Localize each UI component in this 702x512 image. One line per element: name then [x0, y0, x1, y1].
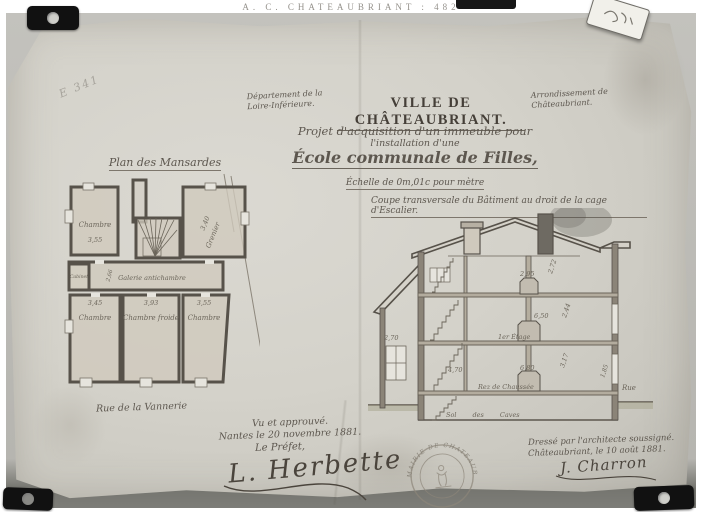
- stamp-inner-ring: [418, 451, 467, 500]
- top-mount-tab: [456, 0, 516, 9]
- dim: 1,85: [599, 364, 610, 379]
- dim: 4,70: [447, 366, 462, 374]
- school-title-text: École communale de Filles,: [292, 148, 537, 169]
- scale-note: Échelle de 0m,01c pour mètre: [250, 170, 580, 189]
- attic-floor-plan: Chambre 3,55 3,40 Grenier Galerie antich…: [55, 172, 260, 400]
- dim: 2,95: [519, 270, 534, 278]
- dim: 2,70: [383, 334, 398, 342]
- terrain-wash: [368, 402, 653, 411]
- photo-corner-mount: [634, 485, 695, 511]
- project-title-line1: Projet d'acquisition d'un immeuble pour: [250, 124, 580, 138]
- stamp-figure: [433, 464, 452, 487]
- mount-hole: [22, 493, 34, 505]
- dim: 6,80: [520, 364, 534, 372]
- signature-flourish: [220, 478, 370, 502]
- dim: 2,72: [546, 258, 558, 275]
- dim: 6,50: [534, 312, 548, 320]
- street-label: Rue: [621, 384, 636, 392]
- floor-label: Rez de Chaussée: [477, 383, 534, 391]
- room-label: Chambre froide: [123, 314, 179, 322]
- scale-note-text: Échelle de 0m,01c pour mètre: [346, 178, 484, 190]
- plan-title: Plan des Mansardes: [90, 151, 240, 170]
- room-dim: 3,55: [88, 236, 102, 244]
- archival-photo-of-drawing: A. C. CHATEAUBRIANT : 482 E 341 Départem…: [0, 0, 702, 512]
- room-dim: 3,45: [88, 299, 102, 307]
- photo-smudge: [550, 208, 612, 237]
- room-dim: 3,55: [197, 299, 211, 307]
- photo-corner-mount: [3, 487, 54, 511]
- photo-corner-mount: [27, 6, 79, 30]
- cross-section-drawing: 2,95 2,72 6,50 2,44 1er Étage 6,80 3,17 …: [368, 208, 653, 433]
- mount-hole: [47, 12, 59, 24]
- plan-title-text: Plan des Mansardes: [109, 156, 221, 171]
- dim: 3,17: [558, 352, 570, 369]
- room-label: Galerie antichambre: [118, 274, 186, 282]
- room-label: Chambre: [79, 314, 112, 322]
- mount-hole: [658, 492, 670, 504]
- room-label: Cabinet: [70, 274, 88, 280]
- floor-label: 1er Étage: [498, 332, 531, 341]
- dim: 2,44: [560, 302, 572, 319]
- school-title: École communale de Filles,: [250, 148, 580, 167]
- architect-flourish: [552, 470, 662, 488]
- room-label: Chambre: [188, 314, 221, 322]
- floor-label: Sol des Caves: [446, 411, 520, 419]
- room-label: Chambre: [79, 221, 112, 229]
- room-dim: 3,93: [144, 299, 158, 307]
- mairie-stamp: MAIRIE DE CHATEAUBRIANT: [390, 432, 494, 512]
